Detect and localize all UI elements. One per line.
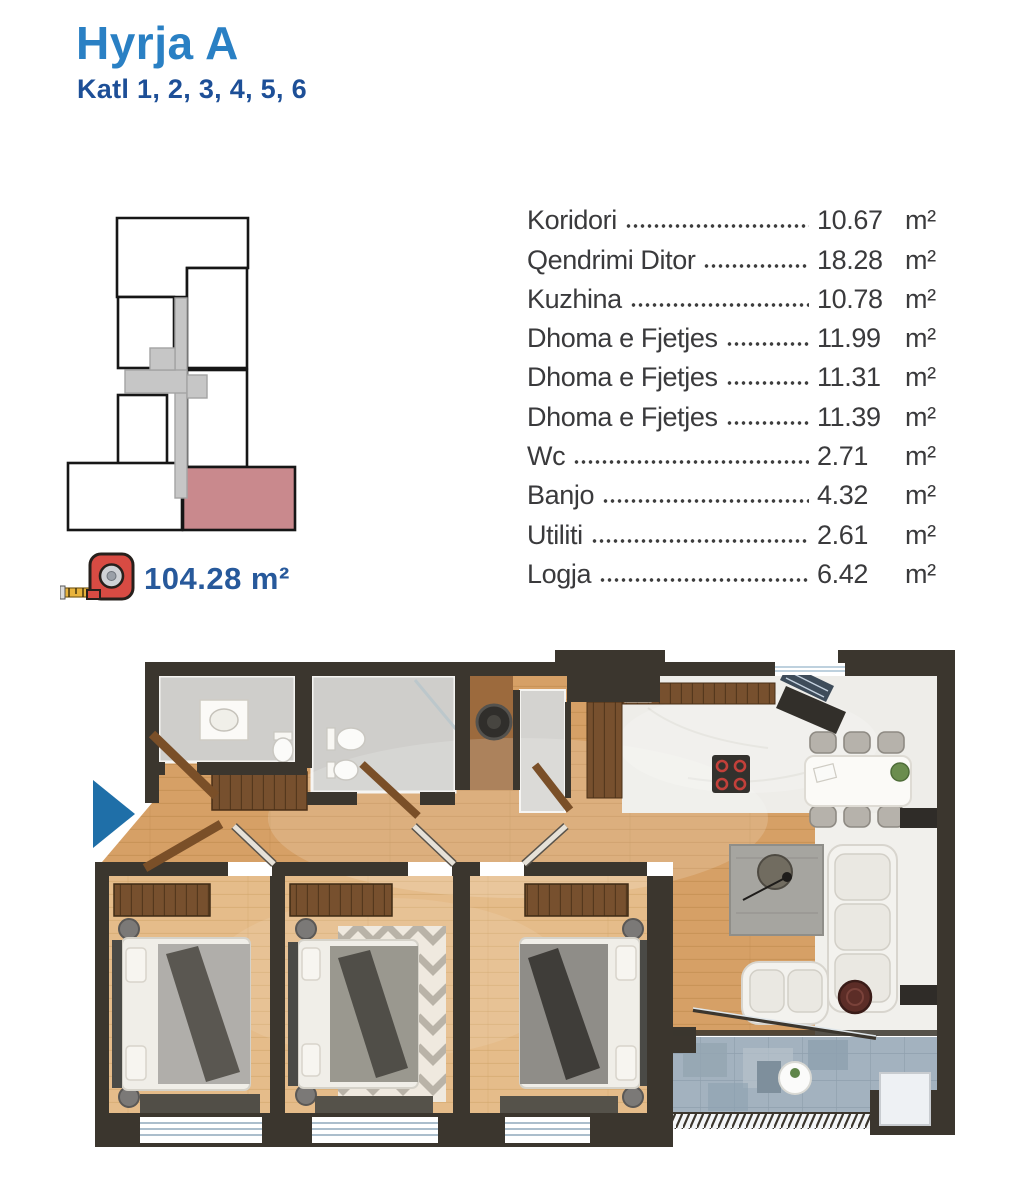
key-plan-core [125, 370, 187, 393]
room-leader-dots [602, 497, 809, 505]
room-row: Utiliti 2.61 m² [527, 511, 957, 550]
room-leader-dots [726, 419, 809, 427]
room-leader-dots [630, 301, 809, 309]
room-unit: m² [905, 402, 957, 433]
key-plan-highlighted-unit [183, 467, 295, 530]
key-plan-unit [68, 463, 182, 530]
key-plan-core [150, 348, 175, 370]
loggia-plant [790, 1068, 800, 1078]
room-area: 18.28 [817, 245, 891, 276]
room-unit: m² [905, 205, 957, 236]
room-row: Dhoma e Fjetjes 11.39 m² [527, 393, 957, 432]
wardrobe [114, 884, 210, 916]
room-area: 2.61 [817, 520, 891, 551]
room-area: 11.39 [817, 402, 891, 433]
room-area: 10.67 [817, 205, 891, 236]
wc-toilet [273, 738, 293, 762]
room-row: Banjo 4.32 m² [527, 472, 957, 511]
room-leader-dots [591, 537, 809, 545]
room-name: Utiliti [527, 520, 583, 551]
wall-bench [900, 808, 937, 828]
key-plan-core [175, 298, 187, 498]
side-table [839, 981, 871, 1013]
room-name: Qendrimi Ditor [527, 245, 695, 276]
room-row: Kuzhina 10.78 m² [527, 276, 957, 315]
room-name: Wc [527, 441, 565, 472]
room-row: Qendrimi Ditor 18.28 m² [527, 236, 957, 275]
floor-plan-render [88, 648, 960, 1165]
page-root: Hyrja A Katl 1, 2, 3, 4, 5, 6 [0, 0, 1033, 1200]
room-leader-dots [573, 458, 809, 466]
nightstand [296, 919, 316, 939]
room-unit: m² [905, 323, 957, 354]
room-row: Logja 6.42 m² [527, 551, 957, 590]
room-row: Dhoma e Fjetjes 11.31 m² [527, 354, 957, 393]
floor-lamp [782, 872, 792, 882]
kitchen-tall-cabinets [587, 702, 622, 798]
room-row: Koridori 10.67 m² [527, 197, 957, 236]
bedroom-rug [140, 1094, 260, 1115]
tape-measure-icon [60, 552, 136, 606]
loggia-mat [757, 1061, 781, 1093]
room-row: Wc 2.71 m² [527, 433, 957, 472]
room-unit: m² [905, 520, 957, 551]
wall-bench [900, 985, 937, 1005]
bath-toilet [337, 728, 365, 750]
page-subtitle: Katl 1, 2, 3, 4, 5, 6 [77, 74, 307, 105]
key-plan-unit [187, 268, 247, 368]
room-area: 4.32 [817, 480, 891, 511]
room-unit: m² [905, 441, 957, 472]
room-unit: m² [905, 284, 957, 315]
page-title: Hyrja A [76, 16, 239, 70]
room-area: 11.31 [817, 362, 891, 393]
room-name: Dhoma e Fjetjes [527, 402, 718, 433]
room-unit: m² [905, 559, 957, 590]
key-plan-unit [118, 395, 167, 468]
loggia-glass-panel [880, 1073, 930, 1125]
room-list: Koridori 10.67 m² Qendrimi Ditor 18.28 m… [527, 197, 957, 590]
room-leader-dots [625, 222, 809, 230]
nightstand [623, 1087, 643, 1107]
room-name: Banjo [527, 480, 594, 511]
room-leader-dots [726, 379, 809, 387]
nightstand [623, 919, 643, 939]
room-row: Dhoma e Fjetjes 11.99 m² [527, 315, 957, 354]
room-area: 11.99 [817, 323, 891, 354]
hall-sideboard [212, 772, 307, 810]
nightstand [119, 919, 139, 939]
room-unit: m² [905, 362, 957, 393]
key-plan-core [187, 375, 207, 398]
room-leader-dots [726, 340, 809, 348]
room-name: Kuzhina [527, 284, 622, 315]
total-area-row: 104.28 m² [60, 552, 290, 606]
total-area-value: 104.28 m² [144, 561, 290, 597]
room-area: 6.42 [817, 559, 891, 590]
wardrobe [290, 884, 392, 916]
room-area: 10.78 [817, 284, 891, 315]
room-unit: m² [905, 480, 957, 511]
building-key-plan [55, 205, 315, 545]
room-area: 2.71 [817, 441, 891, 472]
bath-bidet [334, 760, 358, 780]
loggia-railing [673, 1113, 870, 1129]
room-name: Koridori [527, 205, 617, 236]
wardrobe [525, 884, 628, 916]
room-name: Dhoma e Fjetjes [527, 323, 718, 354]
room-unit: m² [905, 245, 957, 276]
room-name: Dhoma e Fjetjes [527, 362, 718, 393]
room-leader-dots [599, 576, 809, 584]
room-name: Logja [527, 559, 591, 590]
table-plant [891, 763, 909, 781]
room-leader-dots [703, 262, 809, 270]
